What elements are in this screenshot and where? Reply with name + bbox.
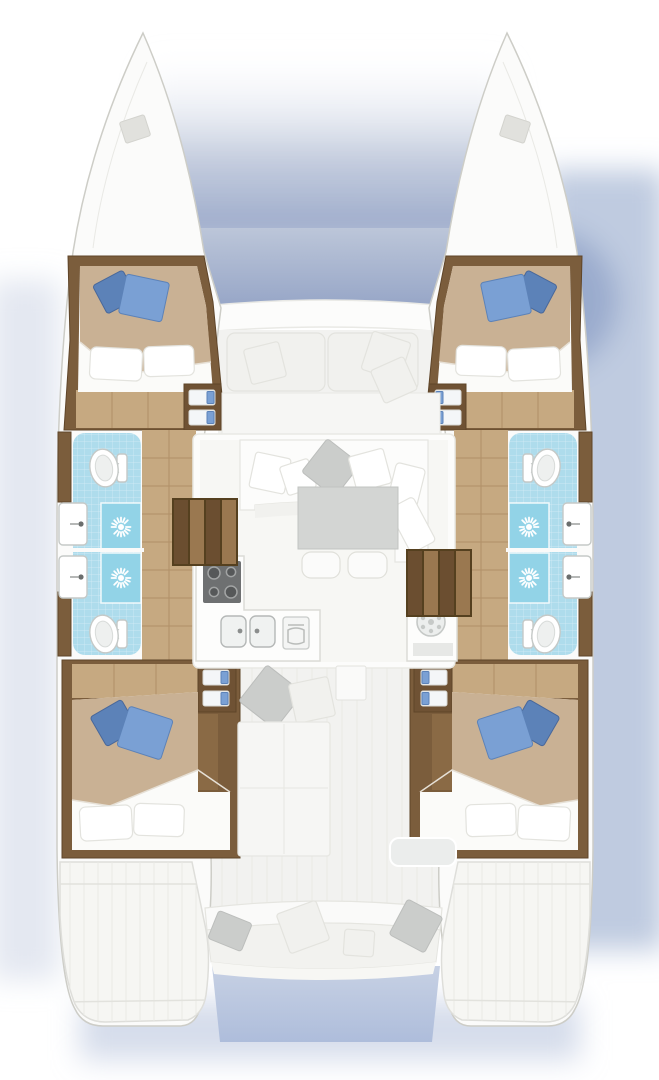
- wood-floor: [72, 664, 198, 698]
- foredeck-beam: [204, 300, 446, 332]
- divider-wall: [506, 548, 580, 552]
- seat-base: [222, 393, 440, 438]
- washbasin: [59, 556, 87, 598]
- white-pillow: [133, 803, 184, 837]
- washbasin: [59, 503, 87, 545]
- transom-steps: [58, 862, 210, 1022]
- companionway-stairs-starboard: [406, 549, 472, 617]
- floor-plan-drawing: [0, 0, 659, 1080]
- shower-sun-icon: [520, 518, 539, 537]
- forward-cockpit: [222, 331, 440, 438]
- bathrooms: [454, 430, 592, 660]
- blue-pillow: [480, 274, 531, 322]
- shower-sun-icon: [520, 569, 539, 588]
- deck-pillow: [243, 341, 287, 385]
- wood-floor: [466, 390, 574, 428]
- catamaran-floor-plan: [0, 0, 659, 1080]
- storage-shelves: [198, 664, 236, 712]
- cockpit-side-panel: [390, 838, 456, 866]
- aft-cabin: [62, 660, 240, 858]
- bow-trampoline: [196, 228, 454, 306]
- wardrobe: [198, 714, 218, 790]
- washbasin: [563, 556, 591, 598]
- hull-side-wall: [58, 432, 71, 502]
- hull-side-wall: [579, 592, 592, 656]
- port-shadow: [0, 280, 60, 980]
- blue-pillow: [118, 274, 169, 322]
- hull-side-wall: [579, 432, 592, 502]
- storage-box: [336, 666, 366, 700]
- forward-cabin: [428, 256, 586, 430]
- washbasin: [563, 503, 591, 545]
- white-pillow: [455, 345, 506, 377]
- shower-sun-icon: [112, 518, 131, 537]
- bench-pillow: [343, 929, 375, 957]
- four-burner-stove-icon: [203, 561, 241, 603]
- white-pillow: [507, 347, 561, 382]
- transom-steps: [440, 862, 592, 1022]
- cabinet-shelf: [413, 643, 453, 656]
- white-pillow: [517, 805, 571, 842]
- companionway-stairs-port: [172, 498, 238, 566]
- white-pillow: [143, 345, 194, 377]
- divider-wall: [70, 548, 144, 552]
- wardrobe: [432, 714, 452, 790]
- hull-side-wall: [58, 592, 71, 656]
- white-pillow: [89, 347, 143, 382]
- dining-table: [298, 487, 398, 549]
- sun-pad: [238, 722, 330, 856]
- wood-floor: [452, 664, 578, 698]
- aft-cabin: [410, 660, 588, 858]
- white-pillow: [465, 803, 516, 837]
- wood-floor: [76, 390, 184, 428]
- oven-icon: [283, 617, 309, 649]
- deck-pillow: [288, 676, 335, 723]
- cockpit-bench: [205, 899, 443, 980]
- storage-shelves: [414, 664, 452, 712]
- forward-cabin: [64, 256, 222, 430]
- saloon-seat: [302, 552, 340, 578]
- saloon-seat: [348, 552, 387, 578]
- white-pillow: [79, 805, 133, 842]
- shower-sun-icon: [112, 569, 131, 588]
- storage-shelves: [184, 384, 221, 430]
